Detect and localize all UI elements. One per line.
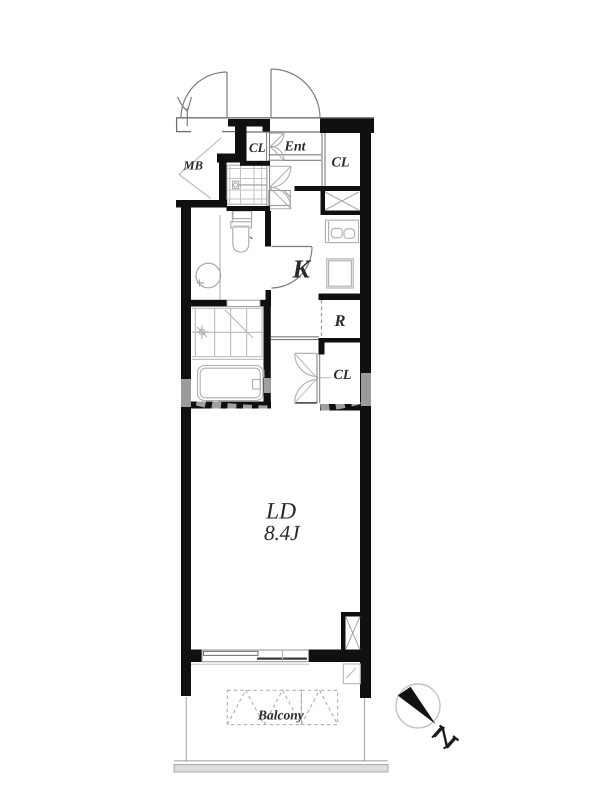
svg-text:CL: CL [332,156,350,171]
svg-text:Balcony: Balcony [257,708,305,723]
svg-text:R: R [334,311,346,330]
svg-text:CL: CL [334,368,352,383]
svg-text:K: K [292,255,312,284]
svg-text:CL: CL [249,140,266,155]
svg-text:Ent: Ent [284,140,307,155]
svg-text:8.4J: 8.4J [264,521,301,545]
svg-text:MB: MB [183,159,203,173]
